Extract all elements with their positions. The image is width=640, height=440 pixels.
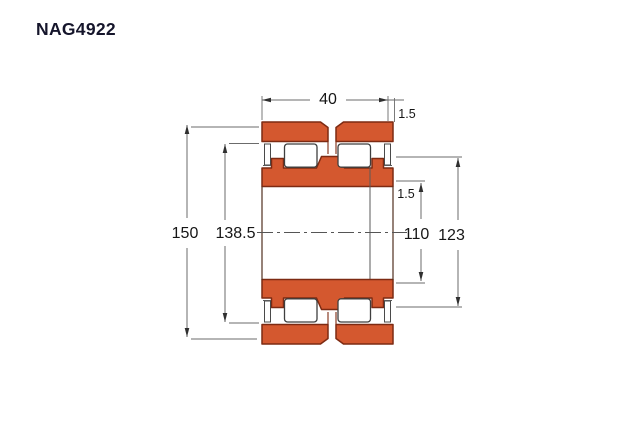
outer-ring-top-left xyxy=(262,122,328,142)
dim-rib-label: 123 xyxy=(438,227,465,244)
arrowhead xyxy=(419,272,424,281)
roller-top-left xyxy=(285,144,318,167)
side-ring-bottom-right xyxy=(385,301,391,322)
dim-inner-chamfer-label: 1.5 xyxy=(397,187,414,201)
inner-ring-bottom xyxy=(262,280,393,310)
roller-bottom-left xyxy=(285,299,318,322)
arrowhead xyxy=(223,313,228,322)
inner-ring-top xyxy=(262,157,393,187)
arrowhead xyxy=(456,297,461,306)
arrowhead xyxy=(262,98,271,103)
side-ring-top-right xyxy=(385,144,391,165)
arrowhead xyxy=(379,98,388,103)
dim-width-label: 40 xyxy=(319,91,337,108)
bearing-cross-section-drawing: 40 1.5 150 138.5 1.5 110 123 xyxy=(0,0,640,440)
dim-bore-label: 110 xyxy=(404,226,430,243)
outer-ring-bottom-left xyxy=(262,325,328,345)
arrowhead xyxy=(456,158,461,167)
arrowhead xyxy=(223,144,228,153)
roller-bottom-right xyxy=(338,299,371,322)
side-ring-top-left xyxy=(265,144,271,165)
roller-top-right xyxy=(338,144,371,167)
outer-ring-bottom-right xyxy=(336,325,393,345)
dim-raceway-label: 138.5 xyxy=(215,225,255,242)
side-ring-bottom-left xyxy=(265,301,271,322)
arrowhead xyxy=(185,328,190,337)
dim-outer-chamfer-label: 1.5 xyxy=(398,107,415,121)
outer-ring-top-right xyxy=(336,122,393,142)
dim-od-label: 150 xyxy=(172,225,199,242)
arrowhead xyxy=(185,125,190,134)
arrowhead xyxy=(419,183,424,192)
